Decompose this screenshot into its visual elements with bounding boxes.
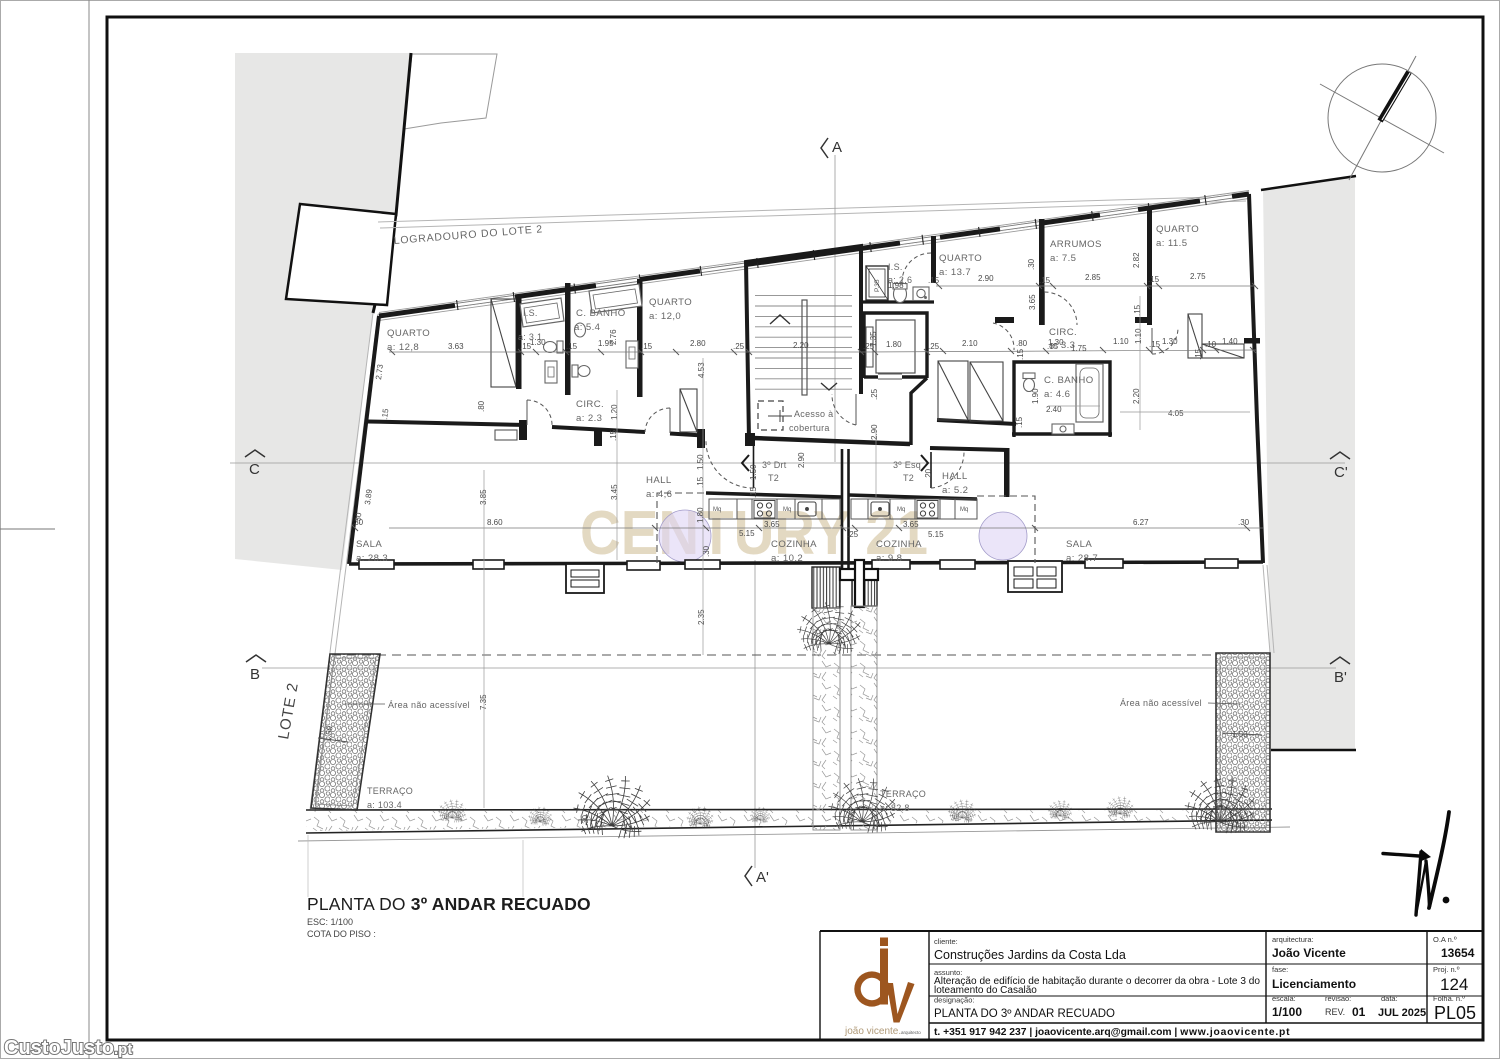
svg-text:C': C' bbox=[1334, 464, 1348, 481]
svg-text:O.A n.º: O.A n.º bbox=[1433, 935, 1457, 944]
svg-text:.15: .15 bbox=[566, 342, 578, 351]
svg-text:Proj. n.º: Proj. n.º bbox=[1433, 965, 1460, 974]
svg-text:2.82: 2.82 bbox=[1132, 252, 1141, 268]
svg-text:.25: .25 bbox=[870, 388, 879, 400]
svg-text:a: 5.2: a: 5.2 bbox=[942, 485, 968, 496]
svg-text:1.80: 1.80 bbox=[696, 507, 705, 523]
svg-text:.15: .15 bbox=[1149, 340, 1161, 349]
svg-text:.30: .30 bbox=[1238, 518, 1250, 527]
svg-text:a: 5.4: a: 5.4 bbox=[574, 322, 601, 333]
svg-text:1.30: 1.30 bbox=[1162, 337, 1178, 346]
svg-text:REV.: REV. bbox=[1325, 1007, 1345, 1017]
svg-text:5.15: 5.15 bbox=[928, 530, 944, 539]
svg-text:T2: T2 bbox=[768, 473, 779, 483]
svg-text:.15: .15 bbox=[641, 342, 653, 351]
svg-text:2.85: 2.85 bbox=[1085, 273, 1101, 282]
svg-text:CustoJusto.pt: CustoJusto.pt bbox=[4, 1037, 132, 1059]
svg-text:a: 12,8: a: 12,8 bbox=[387, 342, 419, 353]
svg-text:a: 28.3: a: 28.3 bbox=[356, 553, 388, 564]
svg-text:SALA: SALA bbox=[356, 539, 382, 550]
svg-text:.80: .80 bbox=[477, 400, 486, 412]
svg-text:TERRAÇO: TERRAÇO bbox=[367, 786, 413, 796]
svg-text:3.65: 3.65 bbox=[903, 520, 919, 529]
svg-text:2.10: 2.10 bbox=[962, 339, 978, 348]
svg-text:2.75: 2.75 bbox=[1190, 272, 1206, 281]
svg-text:T2: T2 bbox=[903, 473, 914, 483]
svg-text:.15: .15 bbox=[1016, 348, 1025, 360]
svg-text:Área não acessível: Área não acessível bbox=[388, 700, 470, 710]
svg-text:.25: .25 bbox=[733, 342, 745, 351]
svg-text:1.10: 1.10 bbox=[1113, 337, 1129, 346]
svg-text:cliente:: cliente: bbox=[934, 937, 958, 946]
svg-text:a: 9.8: a: 9.8 bbox=[876, 553, 902, 564]
svg-text:.10: .10 bbox=[1205, 340, 1217, 349]
svg-text:C. BANHO: C. BANHO bbox=[1044, 375, 1094, 386]
svg-text:designação:: designação: bbox=[934, 996, 974, 1005]
svg-text:João Vicente: João Vicente bbox=[1272, 946, 1346, 960]
svg-text:3º Esq: 3º Esq bbox=[893, 460, 921, 470]
svg-text:1.20: 1.20 bbox=[610, 404, 619, 420]
svg-text:1.40: 1.40 bbox=[1222, 337, 1238, 346]
svg-text:a: 10.2: a: 10.2 bbox=[771, 553, 803, 564]
svg-text:.25: .25 bbox=[847, 530, 859, 539]
svg-text:7.35: 7.35 bbox=[479, 694, 488, 710]
svg-text:t. +351 917 942 237 | joaovice: t. +351 917 942 237 | joaovicente.arq@gm… bbox=[934, 1027, 1290, 1038]
svg-text:Mq: Mq bbox=[783, 507, 791, 513]
svg-text:.15: .15 bbox=[749, 486, 758, 498]
svg-text:JUL 2025: JUL 2025 bbox=[1378, 1007, 1426, 1019]
svg-text:ESC: 1/100: ESC: 1/100 bbox=[307, 917, 353, 927]
svg-text:a: 11.5: a: 11.5 bbox=[1156, 238, 1187, 249]
svg-text:B': B' bbox=[1334, 669, 1347, 686]
svg-text:4.05: 4.05 bbox=[1168, 409, 1184, 418]
svg-text:a: 3.1: a: 3.1 bbox=[518, 332, 542, 342]
svg-text:PLANTA DO 3º ANDAR RECUADO: PLANTA DO 3º ANDAR RECUADO bbox=[934, 1008, 1115, 1020]
svg-text:joão vicente.: joão vicente. bbox=[844, 1026, 901, 1037]
svg-text:Construções Jardins da Costa L: Construções Jardins da Costa Lda bbox=[934, 948, 1126, 962]
svg-text:01: 01 bbox=[1352, 1005, 1366, 1019]
svg-text:.15: .15 bbox=[1148, 275, 1160, 284]
svg-text:TERRAÇO: TERRAÇO bbox=[880, 789, 926, 799]
svg-text:I.S.: I.S. bbox=[888, 262, 903, 272]
svg-text:PL05: PL05 bbox=[1434, 1003, 1476, 1023]
svg-text:5.15: 5.15 bbox=[739, 529, 755, 538]
svg-text:cobertura: cobertura bbox=[789, 423, 830, 433]
svg-text:PLANTA DO 3º ANDAR RECUADO: PLANTA DO 3º ANDAR RECUADO bbox=[307, 894, 591, 914]
svg-text:data:: data: bbox=[1381, 994, 1398, 1003]
svg-text:COZINHA: COZINHA bbox=[771, 539, 817, 550]
svg-text:3.45: 3.45 bbox=[610, 484, 619, 500]
svg-text:ARRUMOS: ARRUMOS bbox=[1050, 239, 1102, 250]
svg-text:QUARTO: QUARTO bbox=[939, 253, 982, 264]
svg-text:2.90: 2.90 bbox=[797, 452, 806, 468]
svg-text:CIRC.: CIRC. bbox=[576, 399, 604, 410]
svg-text:4.53: 4.53 bbox=[697, 362, 706, 378]
svg-text:a: 7.5: a: 7.5 bbox=[1050, 253, 1076, 264]
svg-text:a: 4.6: a: 4.6 bbox=[1044, 389, 1070, 400]
svg-text:2.35: 2.35 bbox=[697, 609, 706, 625]
svg-text:.15: .15 bbox=[1133, 304, 1142, 316]
svg-text:COZINHA: COZINHA bbox=[876, 539, 922, 550]
svg-text:1.50: 1.50 bbox=[749, 464, 758, 480]
svg-text:.30: .30 bbox=[1027, 258, 1036, 270]
svg-text:SALA: SALA bbox=[1066, 539, 1092, 550]
svg-text:Folha. n.º: Folha. n.º bbox=[1433, 994, 1465, 1003]
svg-text:a: 2.3: a: 2.3 bbox=[576, 413, 602, 424]
svg-text:COTA DO PISO :: COTA DO PISO : bbox=[307, 929, 376, 939]
svg-text:a: 103.4: a: 103.4 bbox=[367, 800, 402, 810]
svg-text:3.63: 3.63 bbox=[448, 342, 464, 351]
svg-text:CIRC.: CIRC. bbox=[1049, 327, 1077, 338]
svg-text:1.35: 1.35 bbox=[869, 331, 878, 347]
svg-text:a: 82.8: a: 82.8 bbox=[880, 803, 910, 813]
svg-text:Licenciamento: Licenciamento bbox=[1272, 977, 1356, 991]
svg-text:P.35: P.35 bbox=[874, 279, 881, 292]
svg-text:A: A bbox=[832, 139, 842, 156]
svg-text:3º Drt: 3º Drt bbox=[762, 460, 787, 470]
svg-text:.30: .30 bbox=[353, 512, 363, 525]
svg-text:8.60: 8.60 bbox=[487, 518, 503, 527]
svg-text:B: B bbox=[250, 666, 260, 683]
svg-text:Mq: Mq bbox=[960, 507, 968, 513]
svg-text:1.90: 1.90 bbox=[1031, 388, 1040, 404]
svg-text:.15: .15 bbox=[928, 276, 940, 285]
svg-text:3.85: 3.85 bbox=[479, 489, 488, 505]
svg-text:a: 2,6: a: 2,6 bbox=[888, 275, 912, 285]
svg-text:3.65: 3.65 bbox=[764, 520, 780, 529]
svg-text:loteamento do Casalão: loteamento do Casalão bbox=[934, 985, 1037, 996]
svg-text:2.76: 2.76 bbox=[609, 329, 618, 345]
svg-text:Acesso à: Acesso à bbox=[794, 409, 833, 419]
svg-text:Mq: Mq bbox=[713, 507, 721, 513]
svg-text:arquitectura:: arquitectura: bbox=[1272, 935, 1314, 944]
svg-text:6.27: 6.27 bbox=[1133, 518, 1149, 527]
svg-text:QUARTO: QUARTO bbox=[387, 328, 430, 339]
svg-text:arquitecto: arquitecto bbox=[901, 1030, 921, 1035]
svg-text:124: 124 bbox=[1440, 975, 1468, 994]
svg-text:escala:: escala: bbox=[1272, 994, 1296, 1003]
svg-text:.15: .15 bbox=[1015, 416, 1024, 428]
svg-text:I.S.: I.S. bbox=[523, 308, 538, 318]
svg-text:2.90: 2.90 bbox=[870, 424, 879, 440]
svg-text:A': A' bbox=[756, 869, 769, 886]
svg-text:.15: .15 bbox=[380, 408, 390, 421]
svg-text:1/100: 1/100 bbox=[1272, 1005, 1302, 1019]
svg-text:Área não acessível: Área não acessível bbox=[1120, 698, 1202, 708]
svg-text:1.10: 1.10 bbox=[1134, 328, 1143, 344]
svg-text:1.80: 1.80 bbox=[886, 340, 902, 349]
svg-text:.20: .20 bbox=[924, 468, 933, 480]
svg-text:.15: .15 bbox=[1039, 276, 1051, 285]
svg-text:2.20: 2.20 bbox=[793, 341, 809, 350]
svg-text:HALL: HALL bbox=[646, 475, 672, 486]
svg-text:fase:: fase: bbox=[1272, 965, 1288, 974]
svg-text:revisão:: revisão: bbox=[1325, 994, 1351, 1003]
svg-text:.15: .15 bbox=[1194, 348, 1203, 360]
svg-text:.80: .80 bbox=[1016, 339, 1028, 348]
svg-text:a: 3.3: a: 3.3 bbox=[1049, 340, 1075, 351]
svg-text:3.65: 3.65 bbox=[1028, 294, 1037, 310]
svg-text:QUARTO: QUARTO bbox=[649, 297, 692, 308]
svg-text:2.90: 2.90 bbox=[978, 274, 994, 283]
svg-text:2.80: 2.80 bbox=[690, 339, 706, 348]
svg-text:.25: .25 bbox=[928, 342, 940, 351]
svg-text:a: 4,6: a: 4,6 bbox=[646, 489, 672, 500]
svg-text:13654: 13654 bbox=[1441, 946, 1475, 960]
svg-text:Mq: Mq bbox=[897, 507, 905, 513]
svg-text:1.50: 1.50 bbox=[696, 454, 705, 470]
svg-text:C: C bbox=[249, 461, 260, 478]
svg-text:a: 12,0: a: 12,0 bbox=[649, 311, 681, 322]
svg-text:C. BANHO: C. BANHO bbox=[576, 308, 626, 319]
svg-text:QUARTO: QUARTO bbox=[1156, 224, 1199, 235]
svg-text:a: 28.7: a: 28.7 bbox=[1066, 553, 1098, 564]
svg-text:.15: .15 bbox=[696, 476, 705, 488]
svg-text:HALL: HALL bbox=[942, 471, 968, 482]
svg-text:.30: .30 bbox=[581, 814, 590, 826]
svg-text:a: 13.7: a: 13.7 bbox=[939, 267, 971, 278]
